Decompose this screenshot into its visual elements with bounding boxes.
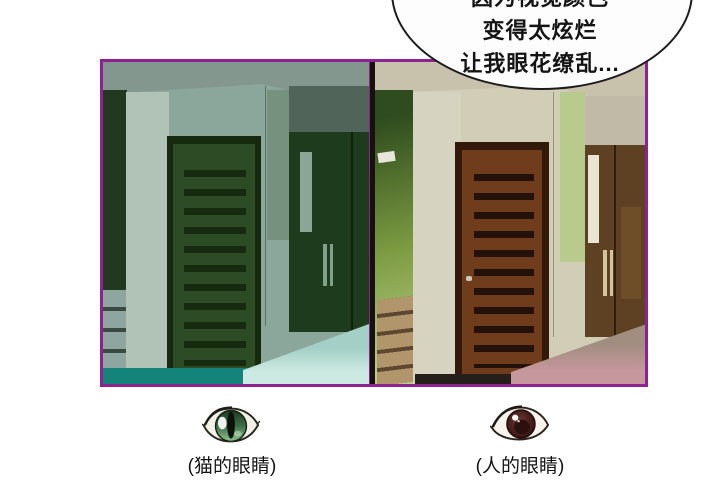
panel-divider	[370, 62, 375, 384]
human-vision-door-slats	[474, 174, 534, 368]
cat-vision-wardrobe	[289, 132, 369, 332]
human-vision-wardrobe-handle	[610, 250, 613, 296]
human-vision-door	[462, 150, 542, 384]
human-vision-floor	[415, 374, 527, 384]
cat-vision-wardrobe-door-gap	[351, 132, 353, 332]
human-vision-drawer-unit	[377, 296, 413, 384]
speech-bubble-text: 因为视觉颜色 变得太炫烂 让我眼花缭乱...	[398, 0, 682, 80]
human-eye-icon	[490, 403, 550, 445]
cat-vision-caption: (猫的眼睛)	[142, 451, 322, 478]
speech-line: 让我眼花缭乱...	[398, 47, 682, 80]
human-vision-wardrobe-panel	[621, 207, 641, 299]
cat-vision-scene	[103, 62, 369, 384]
cat-vision-wall-column	[126, 92, 169, 384]
human-vision-wall-sign	[377, 151, 395, 163]
cat-vision-floor	[103, 368, 255, 384]
human-vision-wall-corner	[553, 92, 554, 337]
human-vision-door-knob	[466, 276, 472, 281]
human-vision-wall-band	[585, 96, 645, 145]
human-vision-scene	[375, 62, 645, 384]
cat-vision-wall-corner	[265, 86, 266, 326]
speech-line: 变得太炫烂	[398, 14, 682, 47]
human-vision-wardrobe-handle	[603, 250, 607, 296]
cat-vision-door	[173, 144, 255, 384]
cat-vision-wardrobe-handle	[323, 244, 327, 286]
human-vision-wardrobe-door-gap	[614, 145, 616, 337]
cat-vision-wall-band	[289, 86, 369, 134]
cat-vision-panel	[100, 59, 372, 387]
cat-vision-wall-strip	[267, 90, 289, 240]
cat-vision-wardrobe-handle	[330, 244, 333, 286]
human-vision-wall-strip	[560, 92, 585, 262]
cat-vision-door-slats	[184, 170, 246, 366]
human-vision-wardrobe-trim	[588, 155, 599, 243]
human-vision-wardrobe	[585, 145, 645, 337]
cat-eye-icon	[202, 404, 260, 446]
cat-vision-left-wall	[103, 90, 127, 292]
human-vision-caption: (人的眼睛)	[430, 451, 610, 478]
speech-line: 因为视觉颜色	[398, 0, 682, 14]
cat-vision-wardrobe-trim	[300, 152, 312, 232]
human-vision-wall-column	[413, 92, 461, 384]
human-vision-panel	[372, 59, 648, 387]
